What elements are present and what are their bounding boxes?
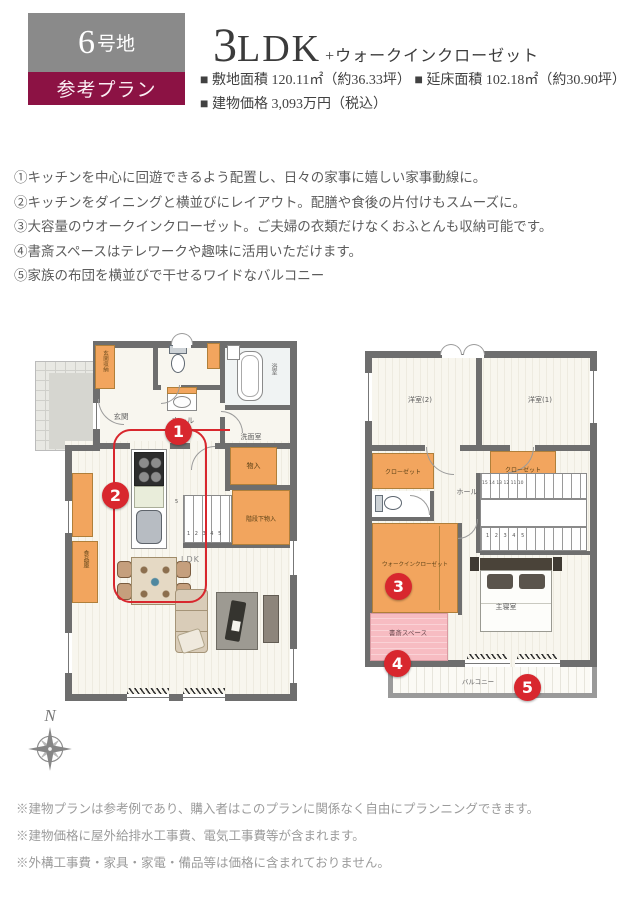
window [65, 501, 72, 533]
window [183, 694, 225, 701]
balcony-door [515, 660, 560, 667]
wall [93, 341, 297, 348]
cupboard [72, 473, 93, 537]
note-1: ※建物プランは参考例であり、購入者はこのプランに関係なく自由にプランニングできま… [16, 796, 616, 823]
feature-item-1: ①キッチンを中心に回遊できるよう配置し、日々の家事に嬉しい家事動線に。 [14, 166, 614, 191]
window [365, 373, 372, 421]
title-number: 3 [213, 22, 237, 70]
pantry: 食品庫 [72, 541, 98, 603]
curtain-hatch [183, 688, 225, 694]
disclaimer-notes: ※建物プランは参考例であり、購入者はこのプランに関係なく自由にプランニングできま… [16, 796, 616, 877]
marker-3: 3 [385, 573, 412, 600]
vanity-sink [173, 396, 191, 408]
wic-divider [439, 526, 440, 610]
understairs-storage: 階段下物入 [232, 490, 290, 545]
flyer-page: { "header": { "lot_number": "6", "lot_su… [0, 0, 623, 900]
feature-item-2: ②キッチンをダイニングと横並びにレイアウト。配膳や食後の片付けもスムーズに。 [14, 191, 614, 216]
wall [372, 517, 434, 521]
lot-badge: 6 号地 参考プラン [28, 13, 185, 105]
window [590, 371, 597, 423]
toilet-bowl-1f [171, 354, 185, 373]
walk-in-closet: ウォークインクローゼット [372, 523, 458, 613]
spec-floor-area: ■ 延床面積 102.18㎡（約30.90坪） [414, 73, 623, 88]
bedroom1-label: 洋室(1) [510, 395, 570, 405]
window [290, 541, 297, 575]
plan-type-label: 参考プラン [28, 72, 185, 105]
washer [227, 345, 240, 360]
wall [153, 341, 158, 389]
stairs-2f-lower-numbers: 1 2 3 4 5 [486, 533, 524, 539]
title-letters: LDK [237, 30, 321, 68]
spec-price: ■ 建物価格 3,093万円（税込） [200, 93, 387, 113]
hall-label-2f: ホール [445, 487, 489, 497]
wall [476, 351, 482, 451]
spec-site-area: ■ 敷地面積 120.11㎡（約36.33坪） [200, 73, 411, 88]
note-3: ※外構工事費・家具・家電・備品等は価格に含まれておりません。 [16, 850, 616, 877]
plan-title: 3 LDK +ウォークインクローゼット [213, 22, 539, 70]
window-arc [463, 344, 485, 355]
front-door-arc [171, 333, 193, 345]
nightstand [553, 557, 562, 571]
marker-4: 4 [384, 650, 411, 677]
wall [365, 445, 425, 451]
study-space: 書斎スペース [370, 613, 448, 661]
entry-step [49, 373, 97, 449]
floor-plan-2f: 洋室(2) 洋室(1) クローゼット クローゼット ホール 15 14 13 1… [360, 343, 602, 705]
washroom-label: 洗面室 [221, 432, 281, 442]
compass-rose-icon [27, 726, 73, 772]
feature-item-4: ④書斎スペースはテレワークや趣味に活用いただけます。 [14, 240, 614, 265]
balcony-door [465, 660, 510, 667]
side-board [263, 595, 279, 643]
wall [153, 385, 161, 390]
closet-right-label: クローゼット [491, 465, 555, 474]
window-arc [440, 344, 462, 355]
closet-left-label: クローゼット [373, 467, 433, 476]
understairs-label: 階段下物入 [233, 514, 289, 523]
stairs-2f-upper-numbers: 15 14 13 12 11 10 [482, 481, 524, 486]
lot-suffix: 号地 [97, 29, 135, 56]
stairs-2f-lower [480, 527, 587, 551]
bath-label: 浴室 [269, 363, 278, 375]
curtain-hatch [127, 688, 169, 694]
bedroom2-label: 洋室(2) [390, 395, 450, 405]
bed-headboard [480, 558, 552, 570]
stairs-2f-upper [480, 473, 587, 499]
tv-screen-glare [231, 620, 241, 631]
study-label: 書斎スペース [371, 627, 445, 637]
wall [65, 694, 297, 701]
wall [225, 405, 297, 410]
entrance-storage-cabinet: 玄関収納 [95, 345, 115, 389]
bathtub-inner [241, 355, 259, 397]
toilet-tank-2f [375, 495, 383, 512]
lot-badge-number-area: 6 号地 [28, 13, 185, 72]
wall [560, 660, 597, 667]
note-2: ※建物価格に屋外給排水工事費、電気工事費等が含まれます。 [16, 823, 616, 850]
curtain-hatch [517, 654, 557, 659]
entrance-storage-label: 玄関収納 [101, 350, 109, 372]
entrance-label: 玄関 [101, 411, 141, 422]
marker-1: 1 [165, 418, 192, 445]
window [290, 649, 297, 683]
window [127, 694, 169, 701]
circulation-loop [113, 429, 207, 603]
feature-item-5: ⑤家族の布団を横並びで干せるワイドなバルコニー [14, 264, 614, 289]
window [65, 633, 72, 673]
feature-list: ①キッチンを中心に回遊できるよう配置し、日々の家事に嬉しい家事動線に。 ②キッチ… [14, 166, 614, 289]
lot-number: 6 [78, 26, 95, 60]
toilet-bowl-2f [384, 496, 402, 510]
master-bedroom-label: 主寝室 [482, 602, 530, 612]
wic-label: ウォークインクローゼット [374, 560, 456, 568]
floor-plan-1f: 玄関収納 玄関 ホール 洗面室 浴室 物入 階段下物入 1 2 3 4 5 5 … [35, 333, 307, 705]
stairs-2f-landing [480, 499, 587, 527]
balcony-label: バルコニー [448, 676, 508, 686]
nightstand [470, 557, 479, 571]
pillow [519, 574, 545, 589]
compass: N [18, 706, 82, 790]
storage-label: 物入 [231, 461, 276, 471]
compass-north-label: N [18, 706, 82, 726]
wall [365, 660, 465, 667]
closet-left: クローゼット [372, 453, 434, 489]
balcony-wall [388, 693, 597, 698]
marker-2: 2 [102, 482, 129, 509]
pillow [487, 574, 513, 589]
toilet-side-cabinet [207, 343, 220, 369]
wall [480, 551, 597, 555]
feature-item-3: ③大容量のウオークインクローゼット。ご夫婦の衣類だけなくおふとんも収納可能です。 [14, 215, 614, 240]
curtain-hatch [467, 654, 507, 659]
marker-5: 5 [514, 674, 541, 701]
pantry-label: 食品庫 [81, 550, 90, 568]
wall [290, 341, 297, 701]
storage-closet: 物入 [230, 447, 277, 485]
title-walkin-closet: +ウォークインクローゼット [325, 42, 539, 66]
spec-areas: ■ 敷地面積 120.11㎡（約36.33坪） ■ 延床面積 102.18㎡（約… [200, 69, 623, 89]
balcony-wall [592, 667, 597, 698]
